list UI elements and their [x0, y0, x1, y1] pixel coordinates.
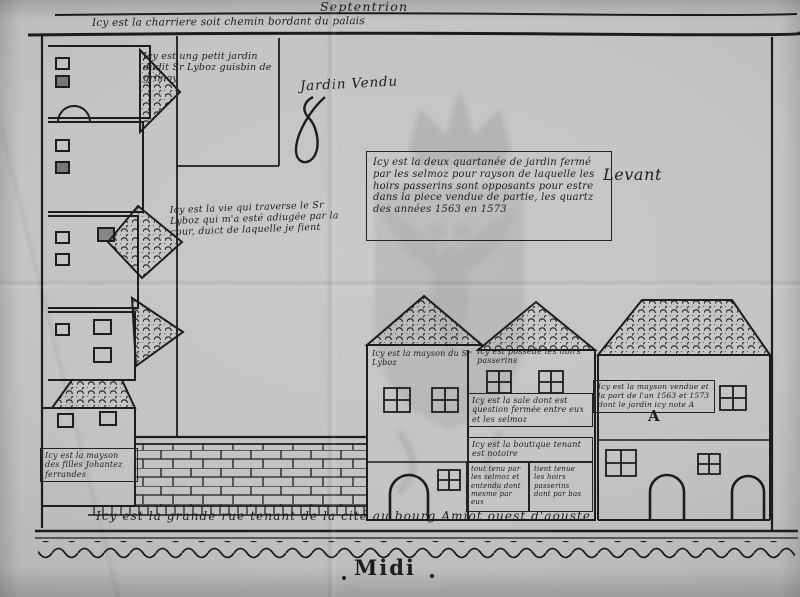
cellar-right-note-box: tient tenue les hoirs passerins dont par… — [529, 462, 593, 512]
compass-east-label: Levant — [603, 166, 662, 185]
compass-south-label: Midi — [354, 556, 416, 581]
left-houses-drawing — [48, 46, 183, 380]
manuscript-plan-photo: Septentrion Icy est la charriere soit ch… — [0, 0, 800, 597]
center-note-box: Icy est la deux quartanée de jardin ferm… — [366, 151, 612, 241]
small-garden-note: Icy est ung petit jardin dudit Sr Lyboz … — [143, 51, 281, 85]
ferrandes-house-label: Icy est la mayson des filles Johantez fe… — [40, 448, 138, 482]
boutique-note-box: Icy est la boutique tenant est notoire — [467, 437, 593, 462]
plan-ink-drawing — [0, 0, 800, 597]
wavy-border-decoration — [38, 541, 795, 580]
compass-north-label: Septentrion — [320, 0, 408, 15]
ferrandes-house-drawing — [42, 380, 135, 506]
top-road-note: Icy est la charriere soit chemin bordant… — [92, 15, 365, 29]
sale-note-box: Icy est la sale dont est question fermée… — [467, 393, 593, 427]
path-note: Icy est la vie qui traverse le Sr Lyboz … — [169, 199, 345, 239]
parcel-a-marker: A — [648, 408, 660, 426]
cellar-left-note-box: tout tenu par les selmoz et entendu dont… — [466, 462, 529, 512]
watermark-coat-of-arms — [375, 87, 525, 492]
bottom-road-note: Icy est la grande rue tenant de la cité … — [96, 509, 591, 523]
lyboz-house-label: Icy est la mayson du Sr Lyboz — [372, 349, 472, 368]
passerins-house-label: Icy est possédé les hoirs passerins — [477, 347, 589, 366]
flourish-mark — [296, 97, 325, 162]
